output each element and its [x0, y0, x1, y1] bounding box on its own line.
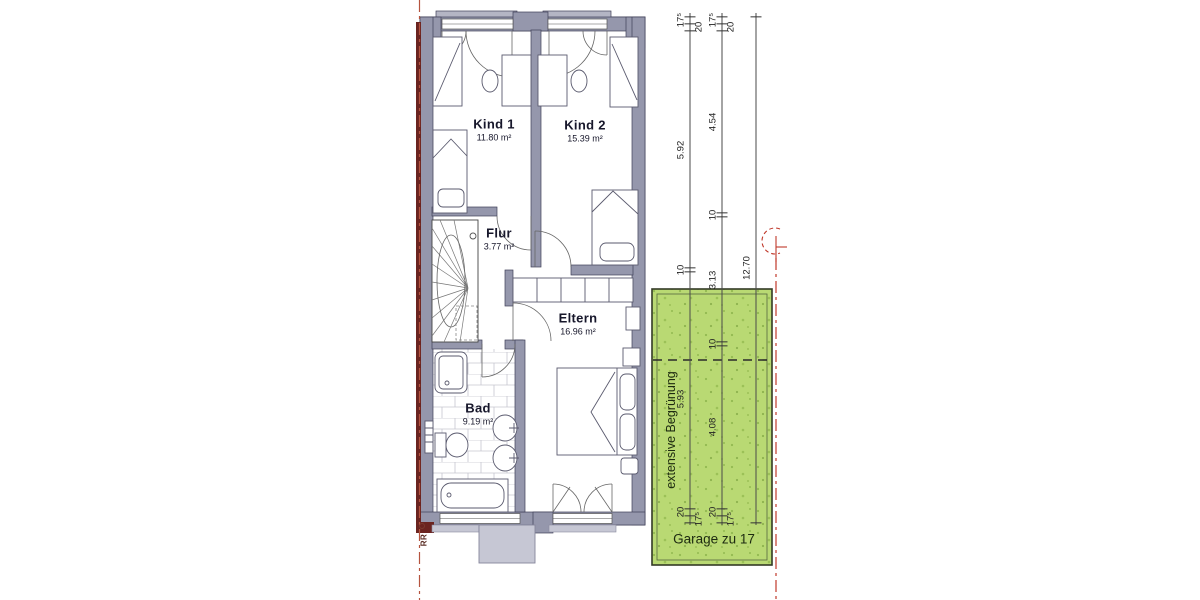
dresser: [626, 307, 640, 330]
room-label-kind1: Kind 111.80 m²: [473, 117, 515, 142]
dimension-label: 10: [708, 210, 719, 221]
section-marker-icon: [762, 228, 780, 254]
dimension-tick: [751, 522, 762, 523]
pillow: [620, 374, 635, 410]
bed: [610, 37, 638, 107]
room-area: 3.77 m²: [484, 241, 515, 251]
dimension-label: 20: [694, 22, 705, 33]
nightstand: [621, 458, 638, 474]
room-label-kind2: Kind 215.39 m²: [564, 118, 606, 143]
building: [416, 11, 645, 563]
dimension-label: 17⁵: [676, 13, 687, 28]
dimension-label: 10: [708, 339, 719, 350]
dimension-label: 12.70: [742, 256, 753, 280]
nightstand: [623, 348, 640, 366]
dimension-label: 5.92: [676, 141, 687, 160]
room-name: Flur: [484, 226, 515, 241]
room-label-eltern: Eltern16.96 m²: [559, 311, 598, 336]
room-label-flur: Flur3.77 m²: [484, 226, 515, 251]
dimension-label: 4.08: [708, 418, 719, 437]
toilet: [446, 433, 468, 457]
dimension-label: 17⁵: [694, 512, 705, 527]
room-name: Eltern: [559, 311, 598, 326]
pillow: [600, 243, 634, 261]
toilet-cistern: [435, 433, 446, 457]
garage-label: Garage zu 17: [673, 532, 755, 547]
room-area: 9.19 m²: [463, 416, 494, 426]
room-name: Kind 2: [564, 118, 606, 133]
pillow: [620, 414, 635, 450]
dimension-label: 3.13: [708, 271, 719, 290]
wardrobe: [513, 278, 633, 302]
staircase: [432, 220, 478, 342]
room-label-bad: Bad9.19 m²: [463, 401, 494, 426]
dimension-label: 5.93: [676, 390, 687, 409]
desk: [502, 55, 531, 106]
room-area: 16.96 m²: [559, 326, 598, 336]
dimension-label: 17⁵: [708, 13, 719, 28]
pillow: [438, 189, 464, 207]
dimension-label: 20: [726, 22, 737, 33]
floorplan-page: extensive Begrünung Garage zu 17 RR Kind…: [0, 0, 1200, 600]
rainpipe-marker-label: RR: [420, 534, 429, 547]
dimension-label: 20: [676, 507, 687, 518]
chair: [482, 70, 498, 92]
exterior-block: [479, 525, 535, 563]
dimension-tick: [751, 16, 762, 17]
floorplan-drawing: [0, 0, 1200, 600]
dimension-label: 20: [708, 507, 719, 518]
chair: [571, 70, 587, 92]
dimension-label: 10: [676, 265, 687, 276]
desk: [538, 55, 567, 106]
room-name: Kind 1: [473, 117, 515, 132]
room-name: Bad: [463, 401, 494, 416]
dimension-label: 4.54: [708, 113, 719, 132]
room-area: 15.39 m²: [564, 133, 606, 143]
room-area: 11.80 m²: [473, 132, 515, 142]
dimension-label: 17⁵: [726, 512, 737, 527]
radiator: [425, 421, 433, 453]
